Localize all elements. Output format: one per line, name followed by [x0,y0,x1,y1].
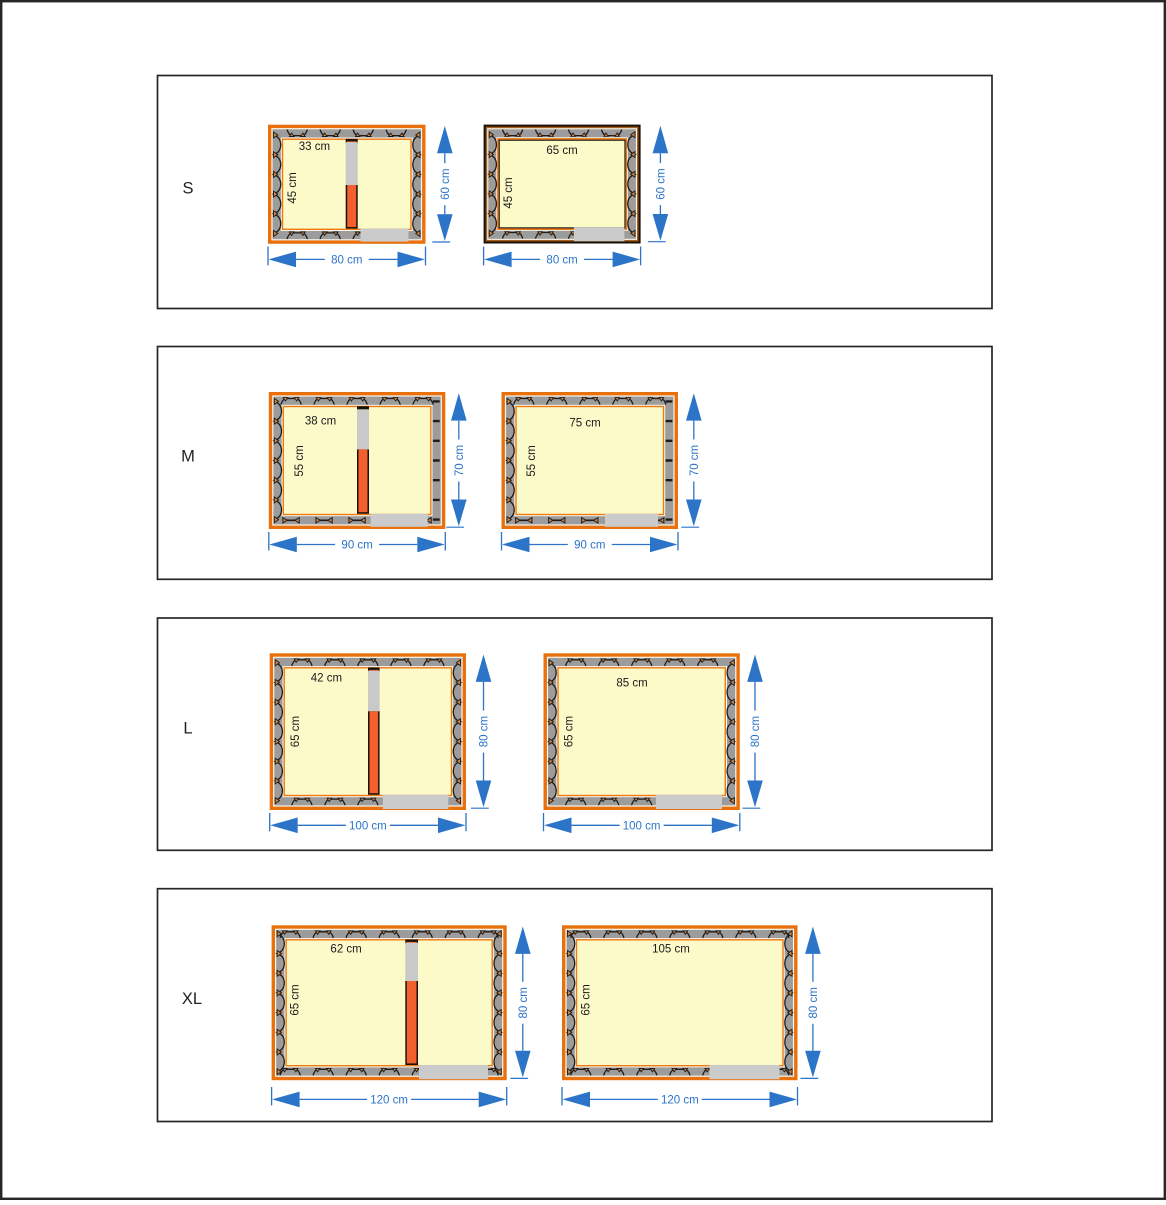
svg-text:65 cm: 65 cm [290,716,302,747]
svg-text:80 cm: 80 cm [546,254,577,266]
svg-text:L: L [183,720,192,738]
svg-text:90 cm: 90 cm [574,540,605,552]
svg-text:S: S [182,180,193,198]
svg-text:45 cm: 45 cm [503,177,515,208]
svg-text:62 cm: 62 cm [330,944,361,956]
svg-text:120 cm: 120 cm [661,1094,699,1106]
svg-text:100 cm: 100 cm [623,820,661,832]
svg-text:70 cm: 70 cm [454,445,466,476]
svg-text:120 cm: 120 cm [370,1094,408,1106]
svg-text:100 cm: 100 cm [349,820,387,832]
svg-text:55 cm: 55 cm [526,445,538,476]
svg-text:33 cm: 33 cm [299,141,330,153]
svg-text:55 cm: 55 cm [294,445,306,476]
svg-text:80 cm: 80 cm [518,987,530,1018]
svg-text:60 cm: 60 cm [655,168,667,199]
svg-text:80 cm: 80 cm [331,254,362,266]
svg-text:80 cm: 80 cm [750,716,762,747]
svg-text:45 cm: 45 cm [287,172,299,203]
svg-text:65 cm: 65 cm [289,984,301,1015]
svg-text:105 cm: 105 cm [652,944,690,956]
svg-text:38 cm: 38 cm [305,416,336,428]
svg-text:M: M [181,448,195,466]
svg-text:90 cm: 90 cm [341,540,372,552]
svg-text:75 cm: 75 cm [569,418,600,430]
svg-text:70 cm: 70 cm [689,445,701,476]
svg-text:85 cm: 85 cm [616,678,647,690]
svg-text:42 cm: 42 cm [311,673,342,685]
svg-text:80 cm: 80 cm [808,987,820,1018]
svg-text:60 cm: 60 cm [440,169,452,200]
svg-text:65 cm: 65 cm [564,716,576,747]
svg-text:80 cm: 80 cm [479,716,491,747]
svg-text:XL: XL [182,990,202,1008]
svg-text:65 cm: 65 cm [546,145,577,157]
svg-text:65 cm: 65 cm [581,984,593,1015]
